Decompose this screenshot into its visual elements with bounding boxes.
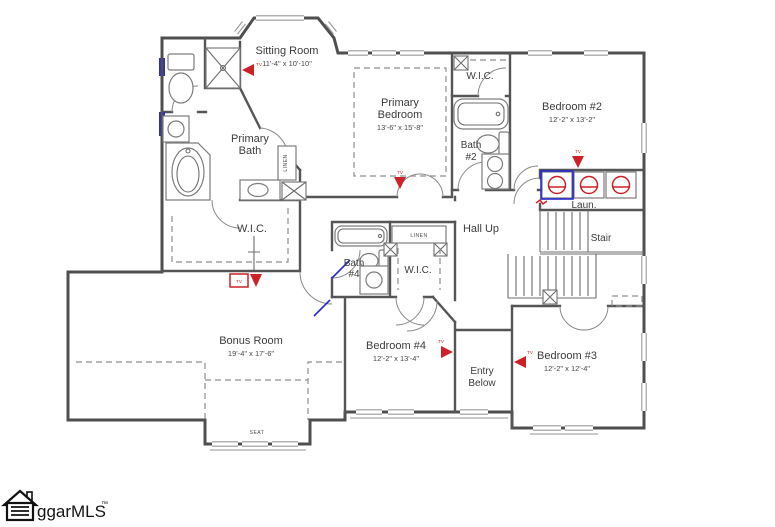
tv-marker-primary-bedroom: TV bbox=[394, 170, 406, 189]
bedroom3-dims: 12'-2" x 12'-4" bbox=[544, 364, 590, 373]
stair-label: Stair bbox=[591, 233, 612, 244]
bedroom3-label: Bedroom #3 bbox=[537, 350, 597, 362]
bedroom2-dims: 12'-2" x 13'-2" bbox=[549, 115, 595, 124]
primary-bath-label-2: Bath bbox=[239, 145, 262, 157]
linen-label: LINEN bbox=[283, 154, 289, 171]
wic-primary-label: W.I.C. bbox=[237, 223, 267, 235]
tv-marker-bedroom2: TV bbox=[572, 149, 584, 168]
tv-arrow-icon bbox=[394, 177, 406, 189]
sink-bowl-2 bbox=[488, 174, 503, 189]
linen-label: LINEN bbox=[410, 233, 427, 239]
bonus-ceiling-break bbox=[76, 362, 342, 420]
wic-primary-rod bbox=[248, 236, 260, 270]
primary-bedroom-label-2: Bedroom bbox=[378, 109, 423, 121]
toilet-tank bbox=[168, 54, 194, 70]
tv-label: TV bbox=[256, 62, 262, 67]
sitting-room-label: Sitting Room bbox=[256, 45, 319, 57]
linen-closet-primary: LINEN bbox=[278, 146, 296, 180]
sink-bowl bbox=[366, 272, 382, 288]
sink-bowl bbox=[168, 121, 184, 137]
sitting-room-dims: 11'-4" x 10'-10" bbox=[262, 59, 312, 68]
tv-marker-bedroom4: TV bbox=[438, 339, 453, 358]
staircase bbox=[508, 210, 644, 306]
tv-marker-bedroom3: TV bbox=[514, 350, 533, 368]
stair-treads-upper bbox=[548, 212, 580, 250]
tv-arrow-icon bbox=[514, 356, 526, 368]
tv-label: TV bbox=[236, 279, 242, 284]
wic-primary-shelf-dash bbox=[172, 206, 288, 262]
tv-marker-sitting: TV bbox=[242, 62, 262, 76]
bedroom4-dims: 12'-2" x 13'-4" bbox=[373, 354, 419, 363]
tv-label: TV bbox=[575, 149, 581, 154]
primary-tub bbox=[166, 143, 210, 200]
tv-marker-bonus: TV bbox=[230, 274, 262, 287]
tv-arrow-icon bbox=[441, 346, 453, 358]
primary-bedroom-dims: 13'-6" x 15'-8" bbox=[377, 123, 423, 132]
bath4-label-1: Bath bbox=[344, 258, 365, 269]
toilet-tank bbox=[499, 132, 509, 156]
house-icon bbox=[4, 491, 36, 520]
bath2-label-1: Bath bbox=[461, 140, 482, 151]
primary-bath-label-1: Primary bbox=[231, 133, 269, 145]
bedroom2-label: Bedroom #2 bbox=[542, 101, 602, 113]
mls-logo-tm: ™ bbox=[101, 501, 108, 508]
bath2-label-2: #2 bbox=[465, 152, 477, 163]
stair-boundaries bbox=[508, 210, 644, 298]
bath4-label-2: #4 bbox=[348, 269, 360, 280]
sink-bowl bbox=[248, 184, 268, 197]
tray-ceiling-primary bbox=[354, 68, 446, 176]
tv-label: TV bbox=[397, 170, 403, 175]
soffit-dashed bbox=[612, 296, 642, 306]
tv-label: TV bbox=[438, 339, 444, 344]
primary-bath-vanity bbox=[240, 180, 306, 200]
floor-plan-drawing: LINEN bbox=[0, 0, 775, 527]
wic-bed4-label: W.I.C. bbox=[404, 265, 431, 276]
mls-logo-text: ggarMLS bbox=[37, 502, 106, 521]
seat-label: SEAT bbox=[250, 430, 265, 436]
toilet-bowl bbox=[169, 73, 193, 103]
mls-logo: ggarMLS ™ bbox=[4, 491, 108, 521]
bedroom4-label: Bedroom #4 bbox=[366, 340, 426, 352]
entry-below-label-1: Entry bbox=[470, 366, 493, 377]
tv-arrow-icon bbox=[250, 274, 262, 287]
bonus-room-dims: 19'-4" x 17'-6" bbox=[228, 349, 274, 358]
laundry-label: Laun. bbox=[571, 200, 596, 211]
toilet-primary bbox=[168, 54, 194, 103]
bay-window-gap bbox=[256, 13, 304, 23]
tv-arrow-icon bbox=[242, 64, 254, 76]
hall-up-label: Hall Up bbox=[463, 223, 499, 235]
entry-below-label-2: Below bbox=[468, 378, 496, 389]
primary-bedroom-label-1: Primary bbox=[381, 97, 419, 109]
tv-label: TV bbox=[527, 350, 533, 355]
primary-bath-sink-left bbox=[163, 116, 189, 142]
sink-bowl-1 bbox=[488, 157, 503, 172]
shower-icon bbox=[206, 48, 240, 88]
wic-upper-label: W.I.C. bbox=[466, 71, 493, 82]
tv-arrow-icon bbox=[572, 156, 584, 168]
floor-plan-page: LINEN bbox=[0, 0, 775, 527]
bonus-room-label: Bonus Room bbox=[219, 335, 283, 347]
